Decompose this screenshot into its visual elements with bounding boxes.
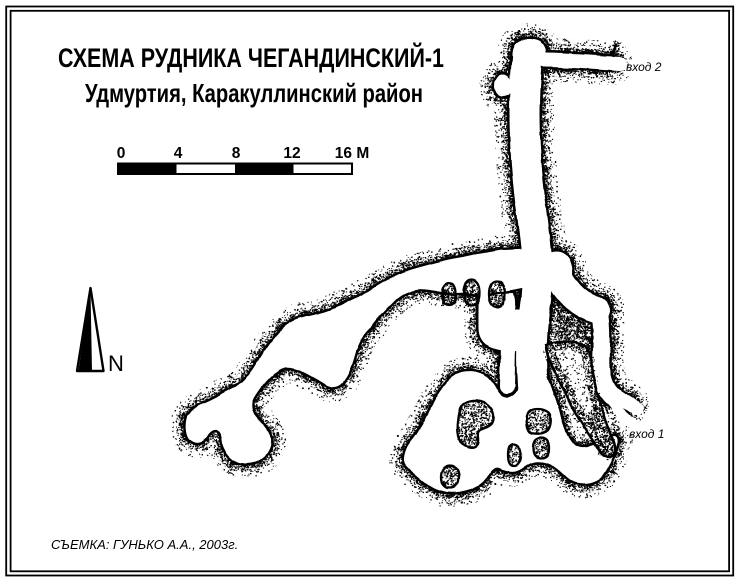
- svg-text:СХЕМА РУДНИКА ЧЕГАНДИНСКИЙ-1: СХЕМА РУДНИКА ЧЕГАНДИНСКИЙ-1: [58, 42, 444, 73]
- svg-text:СЪЕМКА: ГУНЬКО А.А., 2003г.: СЪЕМКА: ГУНЬКО А.А., 2003г.: [51, 537, 238, 552]
- svg-text:Удмуртия, Каракуллинский район: Удмуртия, Каракуллинский район: [85, 78, 423, 108]
- svg-text:вход 2: вход 2: [626, 60, 662, 74]
- svg-text:8: 8: [232, 145, 241, 162]
- svg-text:вход 1: вход 1: [629, 427, 664, 441]
- svg-text:16 М: 16 М: [335, 145, 369, 162]
- svg-text:4: 4: [174, 145, 183, 162]
- svg-text:N: N: [108, 351, 124, 376]
- svg-text:12: 12: [283, 145, 300, 162]
- svg-text:0: 0: [117, 145, 126, 162]
